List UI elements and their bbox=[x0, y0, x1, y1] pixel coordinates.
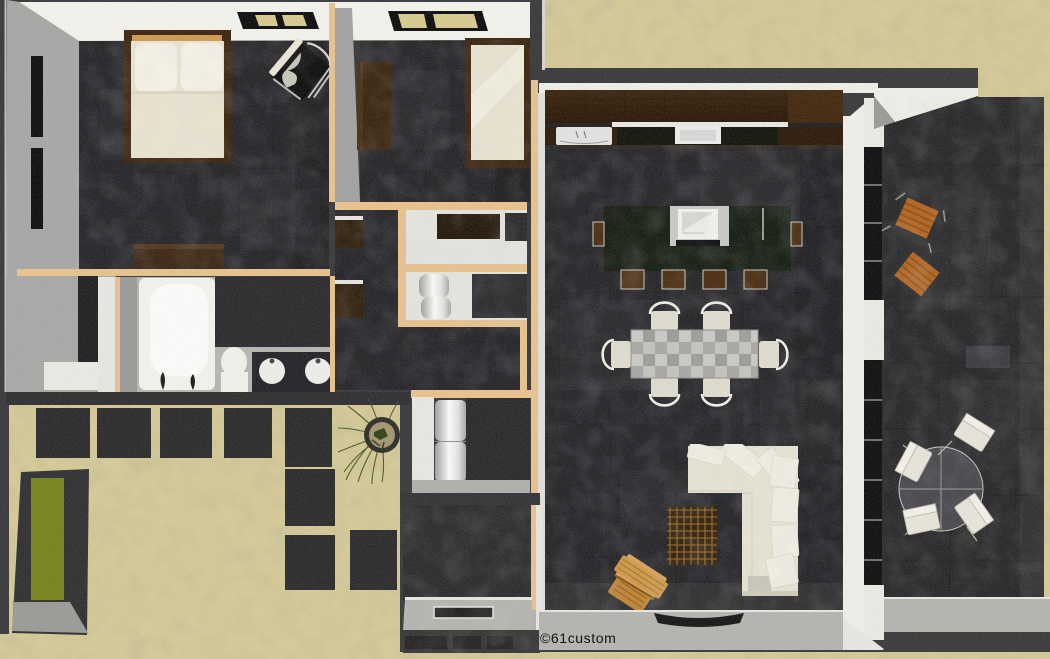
svg-text:©61custom: ©61custom bbox=[540, 630, 616, 646]
